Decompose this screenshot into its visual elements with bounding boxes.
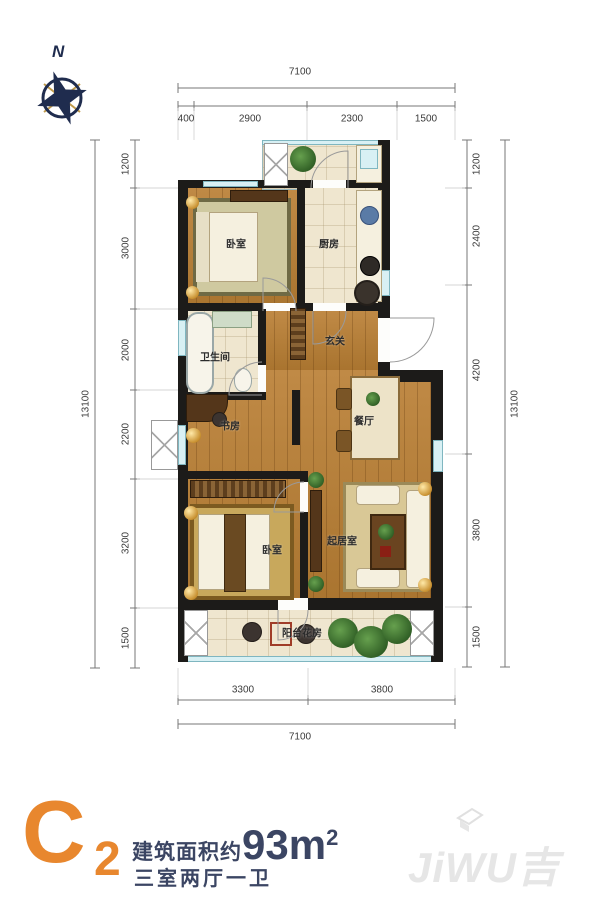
dim-left-seg-4: 2200 — [121, 423, 132, 445]
foyer-shoe-cabinet — [290, 308, 306, 360]
living-lamp-1 — [418, 482, 432, 496]
toilet — [234, 368, 252, 392]
dim-top-seg-4: 1500 — [415, 114, 437, 125]
living-plant-2 — [308, 576, 324, 592]
room-label-bathroom: 卫生间 — [200, 349, 230, 364]
dim-bottom-seg-2: 3800 — [371, 685, 393, 696]
compass-rose-icon — [22, 62, 102, 134]
living-lamp-2 — [418, 578, 432, 592]
kitchen-balcony-door-gap — [313, 180, 346, 188]
compass: N — [22, 42, 102, 134]
balcony-chair-1 — [242, 622, 262, 642]
dim-top-seg-1: 400 — [178, 114, 195, 125]
dim-top-total: 7100 — [289, 67, 311, 78]
kitchen-stove — [360, 256, 380, 276]
bedroom-south-wardrobe — [190, 480, 286, 498]
dim-left-seg-2: 3000 — [121, 237, 132, 259]
unit-letter: C — [22, 788, 86, 876]
dim-top-seg-3: 2300 — [341, 114, 363, 125]
south-balcony-panel-left — [184, 610, 208, 656]
dim-left-seg-3: 2000 — [121, 339, 132, 361]
coffee-table — [370, 514, 406, 570]
ac-platform — [151, 420, 178, 470]
living-plant-1 — [308, 472, 324, 488]
dim-left-seg-5: 3200 — [121, 532, 132, 554]
compass-north-label: N — [52, 42, 64, 62]
dining-centerpiece — [366, 392, 380, 406]
washing-machine-lid — [360, 149, 378, 169]
room-label-foyer: 玄关 — [325, 333, 345, 348]
dim-top-seg-2: 2900 — [239, 114, 261, 125]
dim-bottom-seg-1: 3300 — [232, 685, 254, 696]
dim-right-seg-4: 3800 — [472, 519, 483, 541]
bathroom-vanity — [212, 311, 252, 328]
wall-bedroom-kitchen — [297, 180, 305, 303]
room-label-kitchen: 厨房 — [319, 236, 339, 251]
bathroom-door-gap — [258, 365, 266, 395]
bedroom-south-door-gap — [300, 482, 308, 512]
dining-chair-2 — [336, 430, 352, 452]
study-window — [178, 425, 186, 465]
room-label-dining: 餐厅 — [354, 413, 374, 428]
dim-bottom-total: 7100 — [289, 732, 311, 743]
north-balcony-panel — [264, 143, 288, 186]
kitchen-sink — [360, 206, 379, 225]
entry-door-gap — [378, 318, 390, 362]
dim-left-seg-6: 1500 — [121, 627, 132, 649]
coffee-table-plant — [378, 524, 394, 540]
room-label-balcony: 阳台花房 — [282, 625, 322, 640]
bedroom-north-dresser — [230, 190, 288, 202]
dim-right-seg-2: 2400 — [472, 225, 483, 247]
living-sofa — [406, 490, 430, 588]
dim-right-seg-5: 1500 — [472, 626, 483, 648]
bedroom-north-lamp-2 — [186, 286, 199, 299]
bedroom-north-window — [203, 181, 258, 187]
coffee-table-decor — [380, 546, 391, 557]
living-armchair-bottom — [356, 568, 400, 588]
watermark-house-icon — [452, 806, 486, 832]
wall-study-right — [292, 390, 300, 445]
living-armchair-top — [356, 485, 400, 505]
floorplan: 卧室 厨房 卫生间 玄关 书房 餐厅 卧室 起居室 阳台花房 — [178, 140, 455, 668]
study-lamp — [186, 428, 201, 443]
kitchen-door-gap — [313, 303, 346, 311]
dim-left-total: 13100 — [81, 390, 92, 418]
balcony-plant-3 — [382, 614, 412, 644]
area-value: 93m — [242, 824, 326, 866]
south-balcony-panel-right — [410, 610, 434, 656]
dim-right-total: 13100 — [510, 390, 521, 418]
dim-right-seg-3: 4200 — [472, 359, 483, 381]
area-superscript: 2 — [326, 825, 338, 851]
area-line: 建筑面积约 93m 2 — [132, 824, 338, 866]
watermark-text: JiWU吉屋 — [408, 834, 600, 900]
bedroom-south-lamp-1 — [184, 506, 198, 520]
bedroom-south-bed-runner — [224, 514, 246, 592]
dining-chair-1 — [336, 388, 352, 410]
bedroom-north-pillows — [196, 212, 210, 282]
unit-index: 2 — [94, 836, 121, 884]
kitchen-table — [354, 280, 380, 306]
living-window — [433, 440, 443, 472]
room-label-study: 书房 — [220, 418, 240, 433]
floorplan-page: N — [0, 0, 600, 900]
tv-cabinet — [310, 490, 322, 572]
room-label-bedroom-north: 卧室 — [226, 236, 246, 251]
bedroom-north-lamp-1 — [186, 196, 199, 209]
dim-right-seg-1: 1200 — [472, 153, 483, 175]
south-balcony-window — [183, 656, 438, 662]
bedroom-south-lamp-2 — [184, 586, 198, 600]
wall-study-bottom — [178, 471, 308, 479]
dim-left-seg-1: 1200 — [121, 153, 132, 175]
room-label-bedroom-south: 卧室 — [262, 542, 282, 557]
layout-text: 三室两厅一卫 — [134, 862, 272, 891]
bathroom-window — [178, 320, 186, 356]
room-label-living: 起居室 — [327, 533, 357, 548]
north-balcony-plant — [290, 146, 316, 172]
